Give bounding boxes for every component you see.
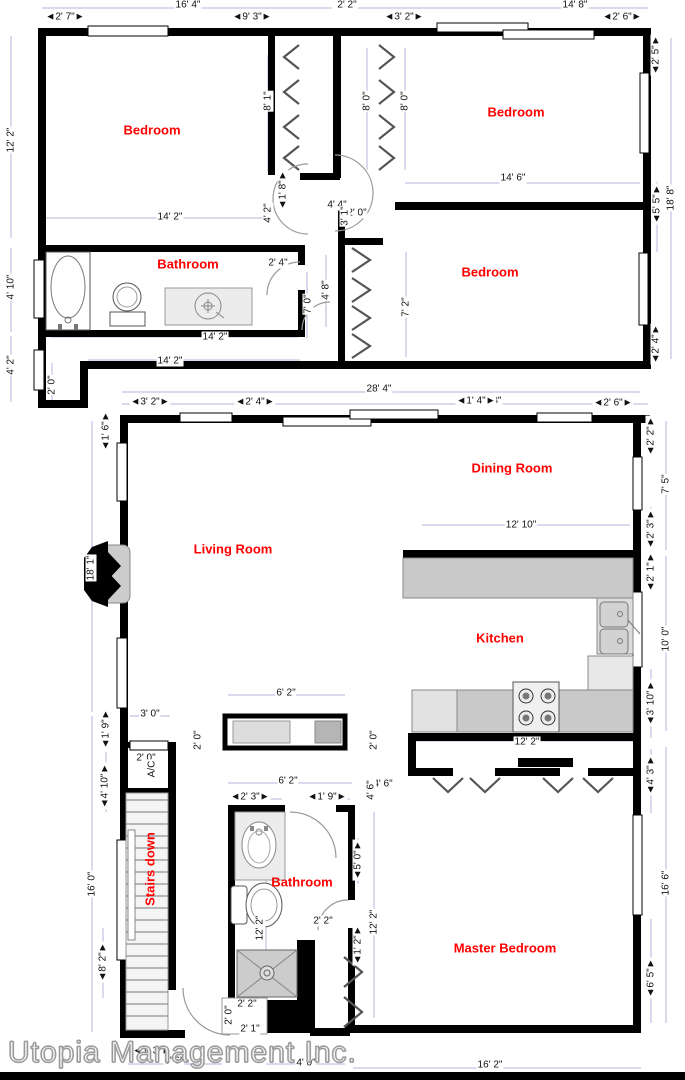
- room-label: Kitchen: [476, 631, 524, 646]
- dim-label: 14' 2": [157, 356, 184, 367]
- dim-label: 28' 4": [366, 384, 393, 395]
- dim-label: 3' 0": [139, 709, 160, 720]
- dim-label: 8' 1": [263, 90, 274, 111]
- dim-label: ◄2' 5"►: [651, 34, 662, 75]
- lower-floor-windows: [117, 410, 642, 960]
- dim-label: 2' 2": [236, 999, 257, 1010]
- dim-label: ◄3' 2"►: [383, 12, 424, 23]
- dim-label: ◄4' 10"►: [100, 763, 111, 810]
- dim-label: 2' 2": [336, 0, 357, 11]
- bottom-bar: [0, 1072, 685, 1080]
- dim-label: 2' 0": [369, 729, 380, 750]
- dim-label: 18' 1": [86, 555, 97, 582]
- dim-label: 2' 4": [267, 258, 288, 269]
- floor-plan: BedroomBedroomBathroomBedroomDining Room…: [0, 0, 685, 1080]
- dim-label: 16' 0": [87, 871, 98, 898]
- dim-label: ◄1' 4"►: [455, 396, 496, 407]
- dim-label: ◄1' 8"►: [278, 169, 289, 210]
- dim-label: ◄3' 2"►: [129, 397, 170, 408]
- dim-label: A/C: [147, 760, 158, 779]
- dim-label: ◄4' 3"►: [646, 754, 657, 795]
- dim-label: ◄2' 6"►: [592, 398, 633, 409]
- bar-counter: [225, 716, 345, 748]
- dim-label: 2' 2": [312, 916, 333, 927]
- dim-label: ◄5' 5"►: [652, 183, 663, 224]
- dim-label: ◄2' 7"►: [44, 12, 85, 23]
- vanity-sink-lower: [235, 812, 285, 880]
- dim-label: 2' 1": [239, 1024, 260, 1035]
- dim-label: 12' 10": [505, 520, 537, 531]
- dim-label: ◄2' 3"►: [646, 508, 657, 549]
- dim-label: 8' 0": [400, 90, 411, 111]
- dim-label: 4' 2": [263, 202, 274, 223]
- closet-chevrons-lower: [344, 778, 613, 1027]
- dim-label: 4' 8": [321, 279, 332, 300]
- shower: [237, 950, 297, 997]
- dim-label: ◄2' 1"►: [646, 551, 657, 592]
- dim-label: ◄2' 4"►: [234, 397, 275, 408]
- dim-label: 4' 10": [6, 274, 17, 301]
- dim-label: 2' 0": [47, 374, 58, 395]
- room-label: Master Bedroom: [454, 941, 557, 956]
- dim-label: 12' 2": [369, 909, 380, 936]
- dim-label: ◄3' 10"►: [646, 680, 657, 727]
- dim-label: 12' 2": [255, 915, 266, 942]
- dim-label: 6' 2": [275, 688, 296, 699]
- stairs: [126, 793, 168, 1030]
- watermark: Utopia Management Inc.: [8, 1036, 357, 1070]
- dim-label: ◄1' 2"►: [353, 924, 364, 965]
- dim-label: 12' 2": [6, 127, 17, 154]
- dim-label: 8' 0": [362, 90, 373, 111]
- toilet-upper: [110, 283, 145, 326]
- dim-label: 14' 6": [500, 173, 527, 184]
- dim-label: 14' 2": [202, 332, 229, 343]
- dim-label: 7' 5": [661, 473, 672, 494]
- dim-label: 4' 6": [366, 779, 377, 800]
- room-label: Bathroom: [157, 257, 218, 272]
- dim-label: ◄2' 2"►: [646, 415, 657, 456]
- room-label: Bedroom: [123, 123, 180, 138]
- dim-label: 7' 2": [401, 296, 412, 317]
- dim-label: 14' 8": [562, 0, 589, 11]
- dim-label: ◄1' 6"►: [101, 410, 112, 451]
- dim-label: 2' 0": [224, 1004, 235, 1025]
- room-label: Dining Room: [472, 461, 553, 476]
- dim-label: ◄1' 9"►: [306, 792, 347, 803]
- dim-label: 4' 2": [6, 354, 17, 375]
- dim-label: 16' 2": [477, 1060, 504, 1071]
- room-label: Stairs down: [143, 832, 158, 906]
- dim-label: 18' 8": [666, 185, 677, 212]
- dim-label: ◄2' 4"►: [651, 323, 662, 364]
- dim-label: ◄5' 0"►: [353, 839, 364, 880]
- dim-label: 12' 2": [514, 737, 541, 748]
- room-label: Living Room: [194, 542, 273, 557]
- dim-label: ◄9' 3"►: [231, 12, 272, 23]
- dim-label: 3' 1": [340, 205, 351, 226]
- dim-label: 16' 6": [661, 870, 672, 897]
- dim-label: ◄8' 2"►: [98, 941, 109, 982]
- dim-label: 16' 4": [175, 0, 202, 11]
- bathtub: [46, 252, 90, 330]
- room-label: Bedroom: [487, 105, 544, 120]
- dim-label: ◄2' 6"►: [601, 12, 642, 23]
- dim-label: ◄6' 5"►: [646, 957, 657, 998]
- vanity-sink-upper: [165, 288, 252, 325]
- room-label: Bedroom: [461, 265, 518, 280]
- floor-plan-drawing: [0, 0, 685, 1080]
- dim-label: ◄1' 9"►: [101, 708, 112, 749]
- dim-label: 10' 0": [661, 626, 672, 653]
- dim-label: 7' 0": [303, 293, 314, 314]
- dim-label: 14' 2": [157, 212, 184, 223]
- dim-label: ◄2' 3"►: [229, 792, 270, 803]
- dim-label: 6' 2": [277, 776, 298, 787]
- room-label: Bathroom: [271, 875, 332, 890]
- dim-label: 2' 0": [193, 729, 204, 750]
